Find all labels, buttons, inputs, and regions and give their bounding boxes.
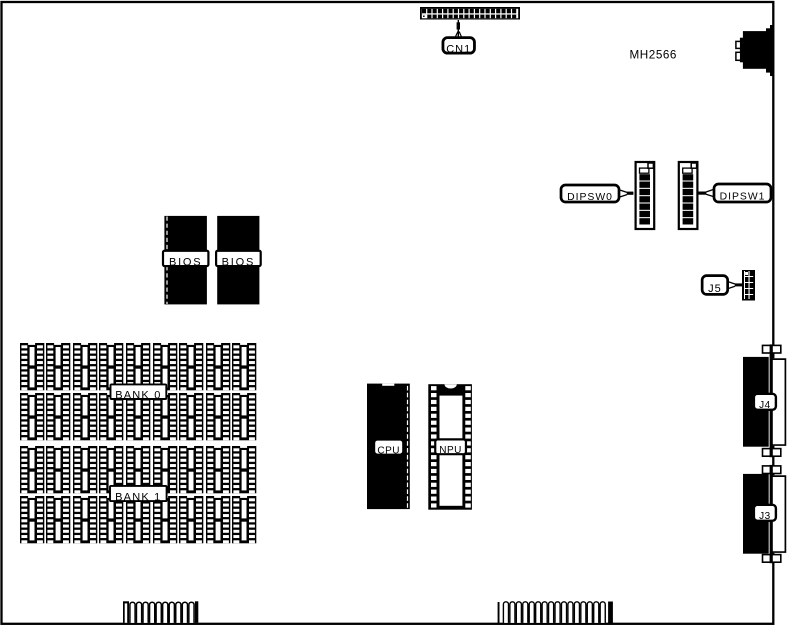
svg-text:NPU: NPU: [439, 445, 462, 456]
svg-text:BIOS: BIOS: [222, 256, 256, 268]
svg-text:BIOS: BIOS: [169, 256, 203, 268]
svg-text:BANK 1: BANK 1: [115, 491, 161, 503]
svg-text:DIPSW1: DIPSW1: [720, 192, 766, 203]
svg-text:J3: J3: [759, 511, 771, 522]
svg-text:DIPSW0: DIPSW0: [567, 192, 613, 203]
svg-text:CN1: CN1: [446, 43, 471, 55]
svg-text:BANK 0: BANK 0: [115, 390, 161, 402]
svg-text:MH2566: MH2566: [630, 48, 677, 61]
svg-text:J4: J4: [759, 400, 771, 411]
svg-text:CPU: CPU: [377, 445, 400, 456]
svg-text:J5: J5: [708, 283, 722, 295]
